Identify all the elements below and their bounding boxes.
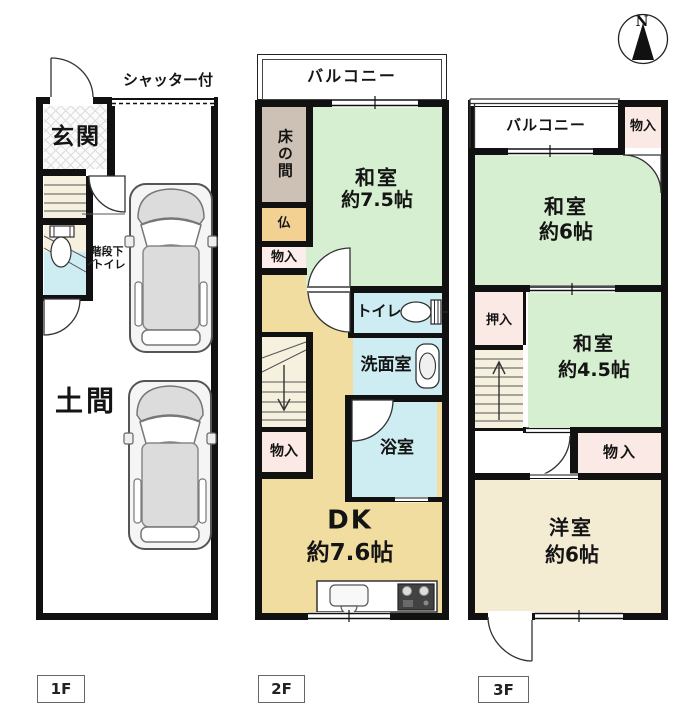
youshitsu-label: 洋室 [549, 518, 593, 539]
doma-label: 土間 [55, 386, 117, 415]
oshiire-label: 押入 [486, 314, 512, 328]
wall [255, 332, 307, 337]
door-opening [625, 148, 661, 155]
washitsu-7-5-size: 約7.5帖 [341, 191, 413, 211]
wall [345, 395, 352, 502]
wall [350, 286, 449, 293]
under-stairs-toilet-label-2: トイレ [93, 259, 126, 271]
floor-label-3f-text: 3F [493, 681, 514, 699]
storage-2f-lower-label: 物入 [270, 445, 298, 460]
storage-2f-upper-label: 物入 [271, 251, 297, 265]
under-stairs-toilet-label-1: 階段下 [91, 246, 124, 258]
entrance-door-arc [51, 58, 93, 97]
wall [523, 292, 526, 345]
wall [468, 285, 668, 292]
wall [262, 202, 307, 208]
wall [86, 176, 93, 300]
floor-label-3f: 3F [478, 676, 529, 703]
toilet-2f-label: トイレ [356, 304, 401, 320]
wall [523, 427, 529, 433]
floor-label-1f: 1F [37, 675, 85, 703]
wall [475, 345, 523, 350]
entrance-opening-1f [50, 95, 93, 106]
wall [475, 428, 523, 431]
wall [306, 332, 313, 479]
wall [345, 395, 449, 402]
balcony-3f-label: バルコニー [506, 118, 586, 134]
wall [578, 473, 668, 480]
balcony-2f-label: バルコニー [307, 69, 397, 86]
compass-north-label: N [636, 14, 649, 30]
washitsu-6-size: 約6帖 [539, 222, 593, 243]
shutter-note: シャッター付 [123, 73, 213, 89]
floor-label-1f-text: 1F [51, 680, 72, 698]
wall [107, 97, 115, 176]
exterior-door-opening-3f [488, 611, 532, 621]
dk-size: 約7.6帖 [307, 541, 394, 565]
dk-label: DK [327, 507, 373, 534]
wall [36, 169, 86, 176]
wall [306, 100, 313, 247]
wall [345, 497, 449, 502]
storage-3f-mid-label: 物入 [603, 445, 637, 461]
floor-plan: N シャッター付 玄関 階段下 トイレ 土間 バルコニー 床の間 和室 約7.5… [0, 0, 680, 712]
wall [348, 333, 449, 338]
youshitsu-size: 約6帖 [545, 545, 599, 566]
wall [348, 286, 354, 338]
wall [570, 427, 578, 477]
tokonoma-label: 床の間 [276, 129, 292, 180]
washitsu-6-label: 和室 [544, 197, 588, 218]
wall [36, 295, 93, 301]
balcony-3f-rail-zone [470, 96, 618, 106]
butsudan-label: 仏 [277, 217, 290, 231]
genkan-label: 玄関 [51, 125, 101, 149]
compass-icon: N [619, 14, 668, 64]
washitsu-4-5-size: 約4.5帖 [558, 361, 630, 381]
shutter-opening-1f [112, 95, 214, 106]
wall [255, 268, 307, 275]
wall [262, 241, 307, 247]
wall [578, 427, 668, 433]
wall [618, 100, 625, 155]
wall [36, 218, 86, 225]
exterior-door-arc-3f [488, 617, 532, 661]
storage-3f-top-label: 物入 [630, 120, 656, 134]
wall [468, 473, 530, 480]
washroom-label: 洗面室 [361, 357, 412, 375]
bathroom-label: 浴室 [380, 440, 414, 458]
washitsu-4-5-label: 和室 [573, 335, 615, 355]
wall [262, 427, 306, 432]
wall [255, 472, 313, 479]
floor-label-2f-text: 2F [271, 680, 292, 698]
washitsu-7-5-label: 和室 [355, 168, 399, 189]
floor-label-2f: 2F [258, 675, 305, 703]
